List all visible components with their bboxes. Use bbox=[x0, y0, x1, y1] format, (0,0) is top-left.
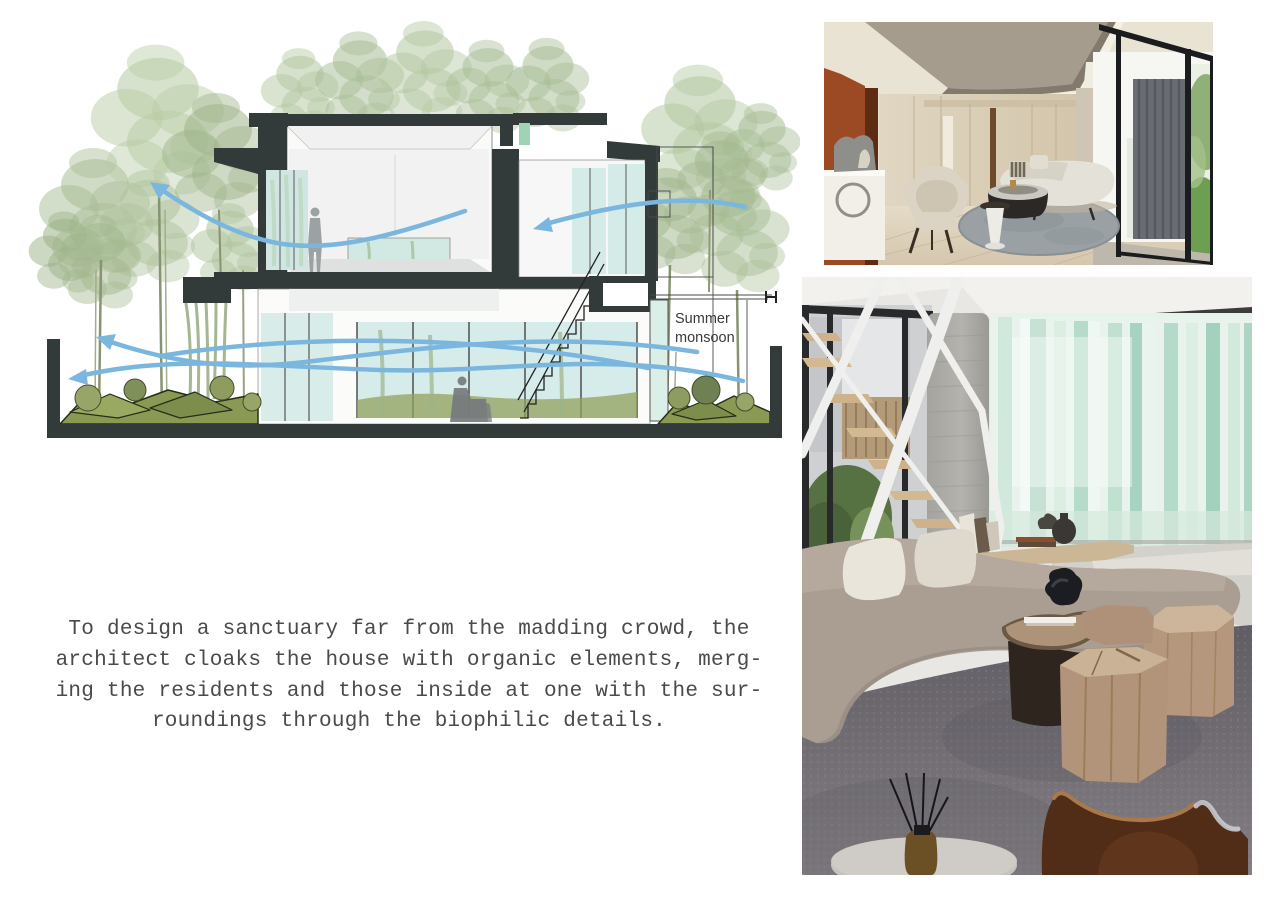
svg-text:monsoon: monsoon bbox=[675, 330, 735, 346]
svg-text:Summer: Summer bbox=[675, 311, 730, 327]
